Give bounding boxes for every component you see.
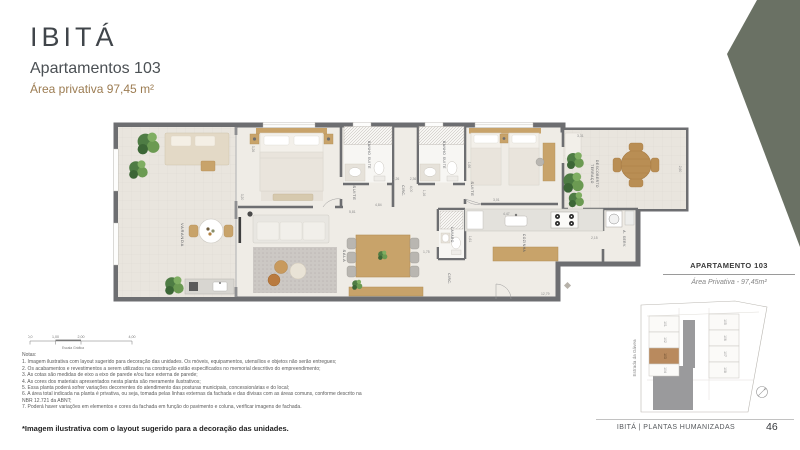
dimension-label: 2,15: [591, 236, 598, 240]
note-item: 7. Poderá haver variações em elementos e…: [22, 404, 367, 410]
pouf: [275, 261, 288, 274]
sink: [442, 234, 449, 242]
info-box-area: Área Privativa - 97,45m²: [663, 275, 795, 286]
service-area-furniture: [606, 211, 634, 227]
dimension-label: 4,47: [503, 212, 510, 216]
dimension-label: 12,79: [541, 292, 550, 296]
room-label-lavabo: LAVABO: [450, 227, 454, 243]
dimension-label: 4,84: [375, 203, 382, 207]
dimension-label: 2,36: [410, 177, 417, 181]
compass-icon: [757, 387, 768, 398]
side-table: [201, 161, 215, 171]
dimension-label: 1,61: [468, 236, 472, 243]
scale-tick: 4,00: [129, 335, 136, 339]
kitchen-sink: [505, 216, 527, 226]
room-label-terraco-2: DESCOBERTO: [595, 160, 599, 188]
private-area-label: Área privativa 97,45 m²: [30, 82, 154, 96]
room-label-terraco-1: TERRAÇO: [590, 164, 594, 184]
laundry-sink: [625, 211, 634, 225]
floor-plan: VARANDA SUITE BANHO SUITE CIRC. BANHO SU…: [113, 119, 695, 315]
bistro-chair: [189, 225, 198, 237]
room-label-area-servico: A. SERV.: [622, 230, 626, 248]
footer-divider: [596, 419, 794, 420]
notes-block: Notas: 1. Imagem ilustrativa com layout …: [22, 352, 367, 411]
unit-label: 107: [723, 351, 727, 357]
bistro-table: [199, 219, 223, 243]
dimension-label: 3,31: [577, 134, 584, 138]
dimension-label: 3,01: [493, 198, 500, 202]
stove: [551, 212, 578, 228]
room-label-banho-suite-1: BANHO SUITE: [367, 141, 371, 169]
north-diamond-icon: [564, 282, 571, 289]
room-label-circ-lower: CIRC.: [447, 273, 451, 284]
desk: [543, 143, 555, 181]
sink: [424, 168, 436, 177]
floor-lamp: [247, 211, 252, 216]
dimension-label: 2,60: [678, 166, 682, 173]
scale-tick: 0,0: [28, 335, 33, 339]
footer-disclaimer: *Imagem ilustrativa com o layout sugerid…: [22, 424, 289, 433]
dimension-label: 2,26: [393, 177, 400, 181]
pouf: [290, 263, 306, 279]
dimension-label: 5,81: [349, 210, 356, 214]
headboard: [469, 128, 541, 134]
counter: [465, 209, 603, 231]
room-label-banho-suite-2: BANHO SUITE: [442, 141, 446, 169]
toilet: [447, 162, 457, 175]
dimension-label: 1,16: [422, 190, 426, 197]
unit-label: 101: [663, 321, 667, 327]
brochure-page: IBITÁ Apartamentos 103 Área privativa 97…: [0, 0, 800, 450]
unit-label: 104: [663, 367, 667, 373]
footer-brand-line: IBITÁ | PLANTAS HUMANIZADAS: [600, 424, 752, 431]
unit-label-highlighted: 103: [663, 353, 667, 359]
dimension-label: 4,00: [409, 186, 413, 193]
dimension-label: 3,26: [251, 146, 255, 153]
room-label-circ-upper: CIRC.: [401, 185, 405, 196]
building-core: [683, 320, 695, 368]
corner-accent-shape: [700, 0, 800, 250]
dimension-label: 1,66: [467, 162, 471, 169]
info-box-title: APARTAMENTO 103: [663, 261, 795, 275]
room-label-sala: SALA: [342, 249, 347, 262]
pouf: [268, 274, 280, 286]
page-number: 46: [766, 421, 778, 433]
room-label-cozinha: COZINHA: [522, 234, 526, 253]
stool: [536, 158, 544, 166]
street-label: Estrada da Gávea: [632, 339, 637, 376]
unit-label: 105: [723, 319, 727, 325]
sink: [349, 168, 361, 177]
scale-tick: 1,00: [52, 335, 59, 339]
bistro-chair: [224, 225, 233, 237]
tv: [239, 217, 242, 243]
banho-suite-2: [419, 127, 464, 183]
bed-bench: [273, 194, 313, 201]
unit-label: 108: [723, 367, 727, 373]
terrace-table: [621, 150, 651, 180]
room-label-suite-2: SUITE: [470, 181, 475, 196]
page-title: IBITÁ: [30, 22, 118, 53]
scale-tick: 2,00: [78, 335, 85, 339]
room-label-suite-master: SUITE: [352, 185, 357, 200]
dimension-label: 1,75: [423, 250, 430, 254]
common-area: [653, 376, 693, 410]
unit-label: 106: [723, 335, 727, 341]
site-key-plan: Estrada da Gávea 101 102 103 104: [613, 296, 795, 422]
scale-bar: 0,0 1,00 2,00 4,00 Escala Gráfica: [28, 331, 140, 351]
apartment-subtitle: Apartamentos 103: [30, 60, 161, 78]
room-label-varanda: VARANDA: [180, 223, 185, 247]
dimension-label: 3,20: [240, 194, 244, 201]
shower: [419, 127, 464, 145]
fridge: [467, 211, 483, 229]
note-item: 1. Imagem ilustrativa com layout sugerid…: [22, 359, 367, 365]
unit-label: 102: [663, 337, 667, 343]
notes-title: Notas:: [22, 352, 367, 358]
scale-bar-label: Escala Gráfica: [62, 346, 84, 350]
toilet: [374, 162, 384, 175]
apartment-info-box: APARTAMENTO 103 Área Privativa - 97,45m²: [663, 261, 795, 286]
note-item: 6. A área total indicada na planta é pri…: [22, 391, 367, 404]
